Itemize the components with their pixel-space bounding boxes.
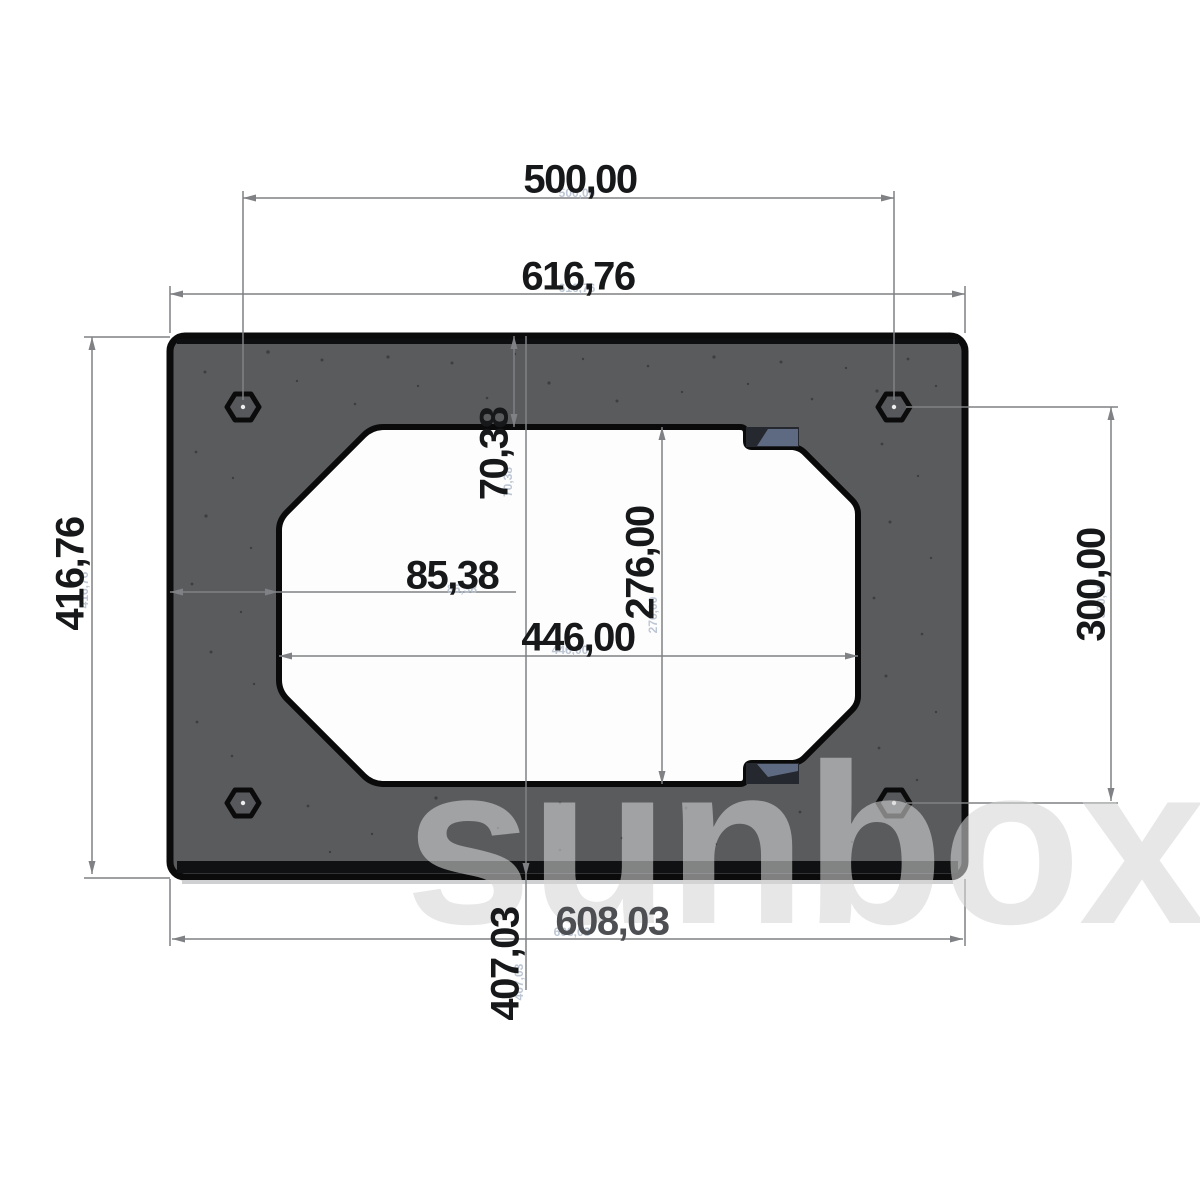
dimension-label-bottom-width: 608,03 xyxy=(555,900,668,945)
dimension-label-overall-width: 616,76 xyxy=(521,255,634,300)
dimension-label-cutout-top-offset: 70,38 xyxy=(473,408,518,501)
plate-top-edge xyxy=(177,339,958,344)
dimension-label-overall-height: 416,76 xyxy=(49,517,94,630)
dimension-label-hole-spacing-y: 300,00 xyxy=(1070,528,1115,641)
dimension-label-cutout-left-offset: 85,38 xyxy=(406,554,499,599)
dimension-label-cutout-height: 276,00 xyxy=(619,506,664,619)
dimension-label-vertical-extent: 407,03 xyxy=(484,907,529,1020)
dimension-label-hole-spacing-x: 500,00 xyxy=(523,158,636,203)
dimension-label-cutout-width: 446,00 xyxy=(521,616,634,661)
technical-drawing-canvas: sunbox 500,00 616,76 416,76 300,00 70,38… xyxy=(0,0,1200,1200)
